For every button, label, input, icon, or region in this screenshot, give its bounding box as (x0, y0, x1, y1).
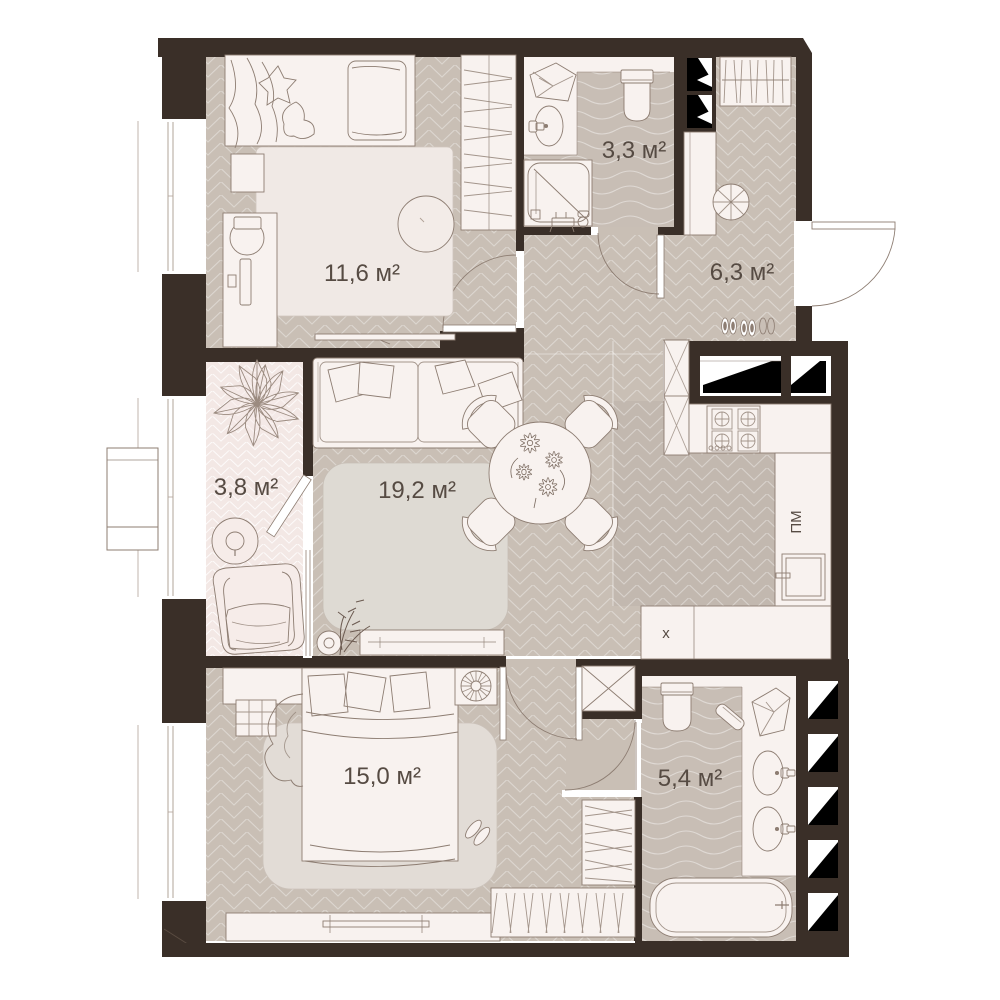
svg-text:3,3 м²: 3,3 м² (602, 137, 667, 164)
svg-text:19,2 м²: 19,2 м² (378, 477, 456, 504)
svg-text:3,8 м²: 3,8 м² (214, 474, 279, 501)
svg-text:15,0 м²: 15,0 м² (343, 763, 421, 790)
svg-text:х: х (662, 625, 670, 642)
svg-text:11,6 м²: 11,6 м² (324, 260, 400, 287)
svg-text:6,3 м²: 6,3 м² (710, 259, 775, 286)
svg-text:5,4 м²: 5,4 м² (658, 765, 723, 792)
svg-text:ПМ: ПМ (788, 510, 805, 533)
